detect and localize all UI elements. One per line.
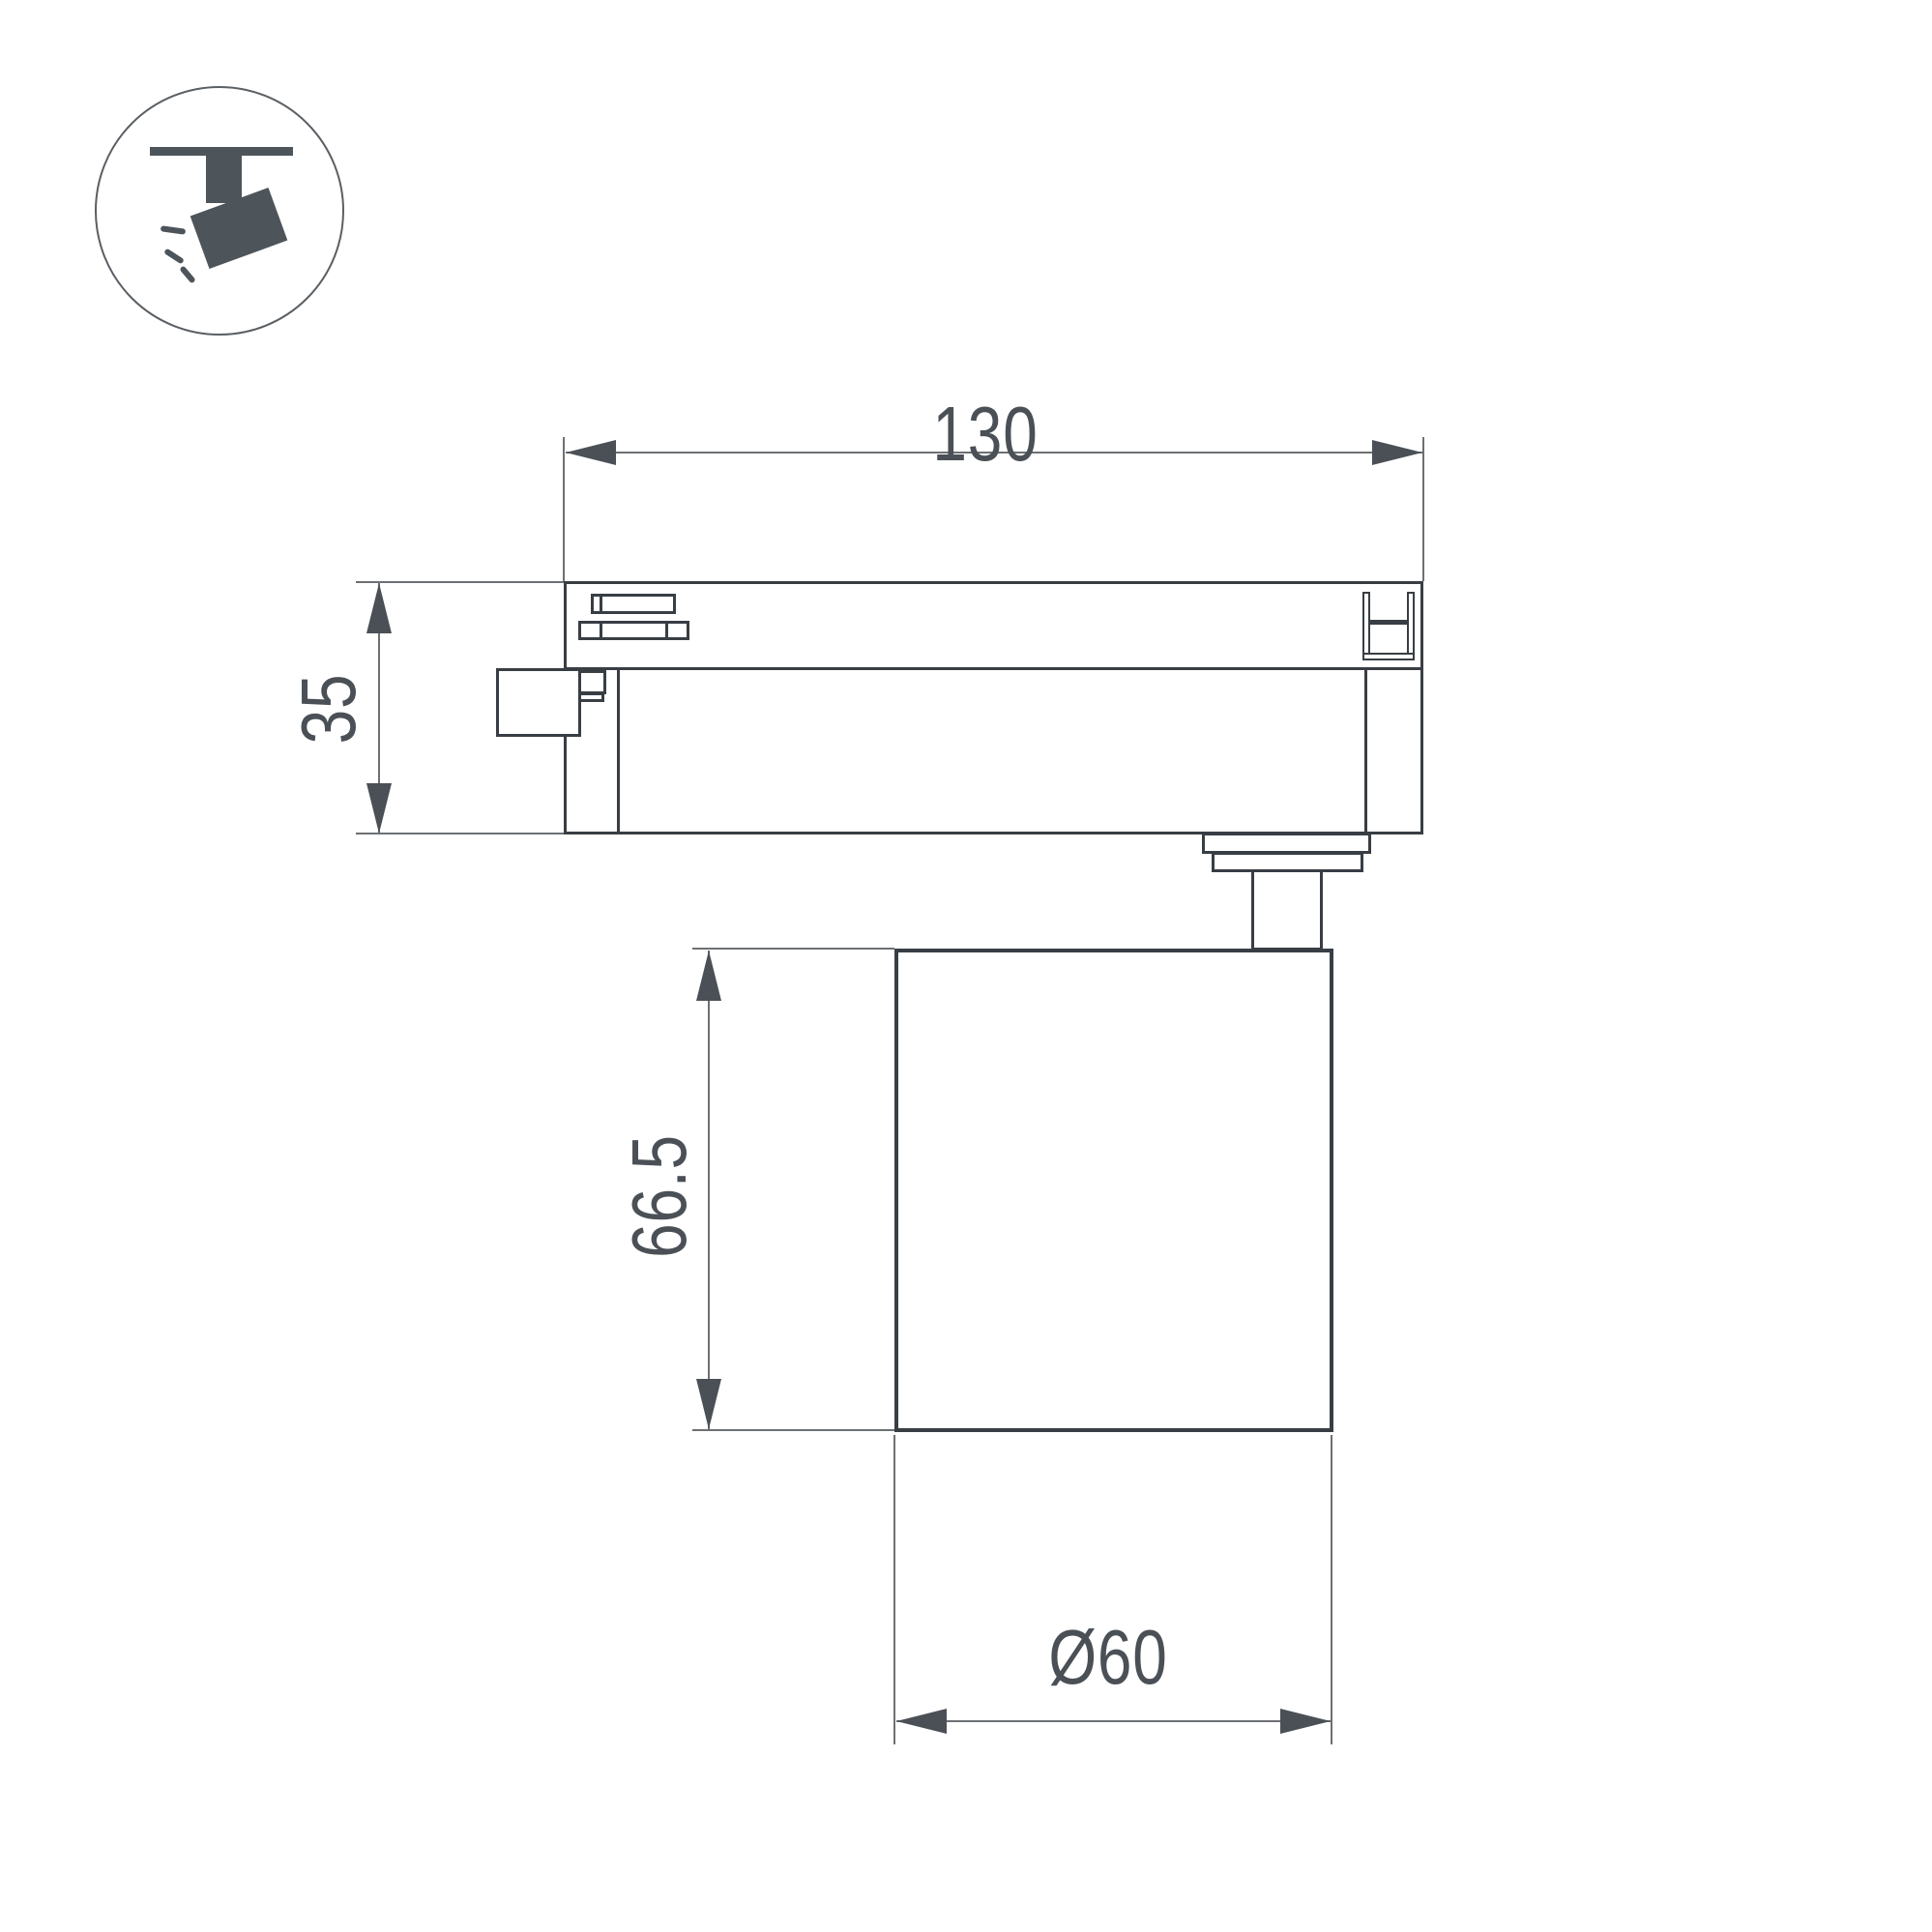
dim-66-ext-bottom [692, 1429, 894, 1431]
dim-130-ext-left [563, 437, 565, 581]
contact-tab-lower [578, 621, 689, 640]
dim-60-line [896, 1720, 1332, 1722]
dim-130-arrow-left [566, 440, 616, 465]
release-lever [496, 668, 581, 737]
track-stem-icon [206, 153, 242, 203]
dim-35-label: 35 [290, 674, 367, 745]
mount-flange-upper [1202, 833, 1371, 854]
end-clip-crossbar [1369, 620, 1408, 625]
track-adapter-outline [564, 581, 1423, 834]
swivel-stem [1251, 869, 1323, 951]
lever-step-lower [578, 692, 604, 702]
lamp-body [894, 949, 1333, 1432]
adapter-inner-line-left [617, 670, 620, 833]
lever-step-upper [578, 670, 606, 694]
dimension-drawing-canvas: 130 35 66.5 Ø60 [0, 0, 1932, 1932]
dim-60-arrow-left [896, 1709, 947, 1734]
contact-tab-lower-cap-left [600, 621, 602, 640]
dim-130-ext-right [1422, 437, 1424, 581]
dim-35-arrow-down [366, 783, 392, 834]
contact-tab-lower-cap-right [665, 621, 668, 640]
contact-tab-upper-cap [600, 594, 602, 614]
dim-35-arrow-up [366, 583, 392, 633]
dim-66-arrow-up [696, 951, 721, 1001]
dim-66-line [708, 951, 710, 1429]
adapter-inner-line-right [1364, 670, 1367, 833]
dim-66-arrow-down [696, 1379, 721, 1429]
dim-60-label: Ø60 [1048, 1619, 1167, 1696]
adapter-divider-line [564, 667, 1423, 670]
dim-60-ext-right [1331, 1435, 1332, 1744]
dim-60-arrow-right [1280, 1709, 1331, 1734]
dim-130-label: 130 [932, 395, 1038, 473]
end-clip-right-wall [1407, 592, 1415, 660]
dim-130-arrow-right [1372, 440, 1422, 465]
dim-60-ext-left [893, 1435, 895, 1744]
contact-tab-upper [591, 594, 676, 614]
dim-66-label: 66.5 [621, 1134, 698, 1258]
dim-66-ext-top [692, 948, 894, 950]
end-clip-left-wall [1362, 592, 1370, 660]
end-clip-bottom [1362, 653, 1415, 660]
